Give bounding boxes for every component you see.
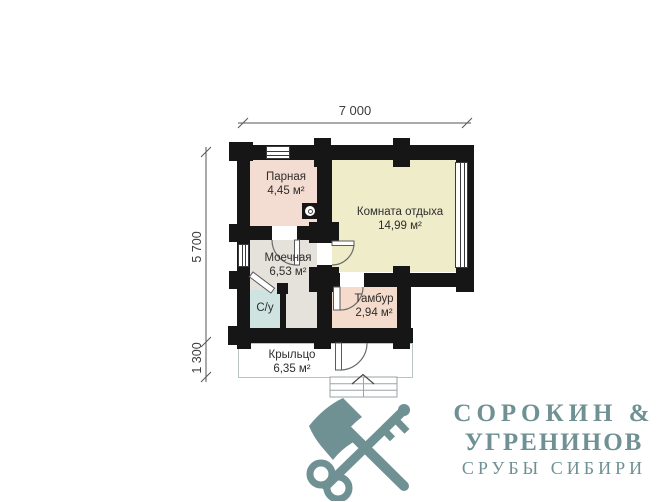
logo-line-1: СОРОКИН & [444,399,664,429]
dimension-lines [201,118,472,382]
door-arc-entry [340,343,367,370]
door-leaf-komnata [332,241,354,246]
dimension-left-porch: 1 300 [190,329,204,387]
floor-plan-canvas: Парная 4,45 м² Комната отдыха 14,99 м² М… [0,0,667,502]
room-label-komnata-otdyha: Комната отдыха 14,99 м² [340,205,460,233]
door-leaf-entry [336,343,342,370]
logo-line-2: УГРЕНИНОВ [444,429,664,456]
dimension-left-main: 5 700 [190,218,204,276]
room-label-tambur: Тамбур 2,94 м² [336,292,412,320]
room-label-moechnaya: Моечная 6,53 м² [250,251,326,279]
logo-line-3: СРУБЫ СИБИРИ [444,456,664,480]
logo-text: СОРОКИН & УГРЕНИНОВ СРУБЫ СИБИРИ [444,399,664,480]
door-arc-komnata [332,243,354,265]
crossed-axe-and-key-icon [296,389,428,501]
room-label-kryltso: Крыльцо 6,35 м² [254,348,330,376]
room-label-su: С/у [246,301,284,315]
room-label-parnaya: Парная 4,45 м² [248,170,324,198]
dimension-top: 7 000 [305,103,405,118]
